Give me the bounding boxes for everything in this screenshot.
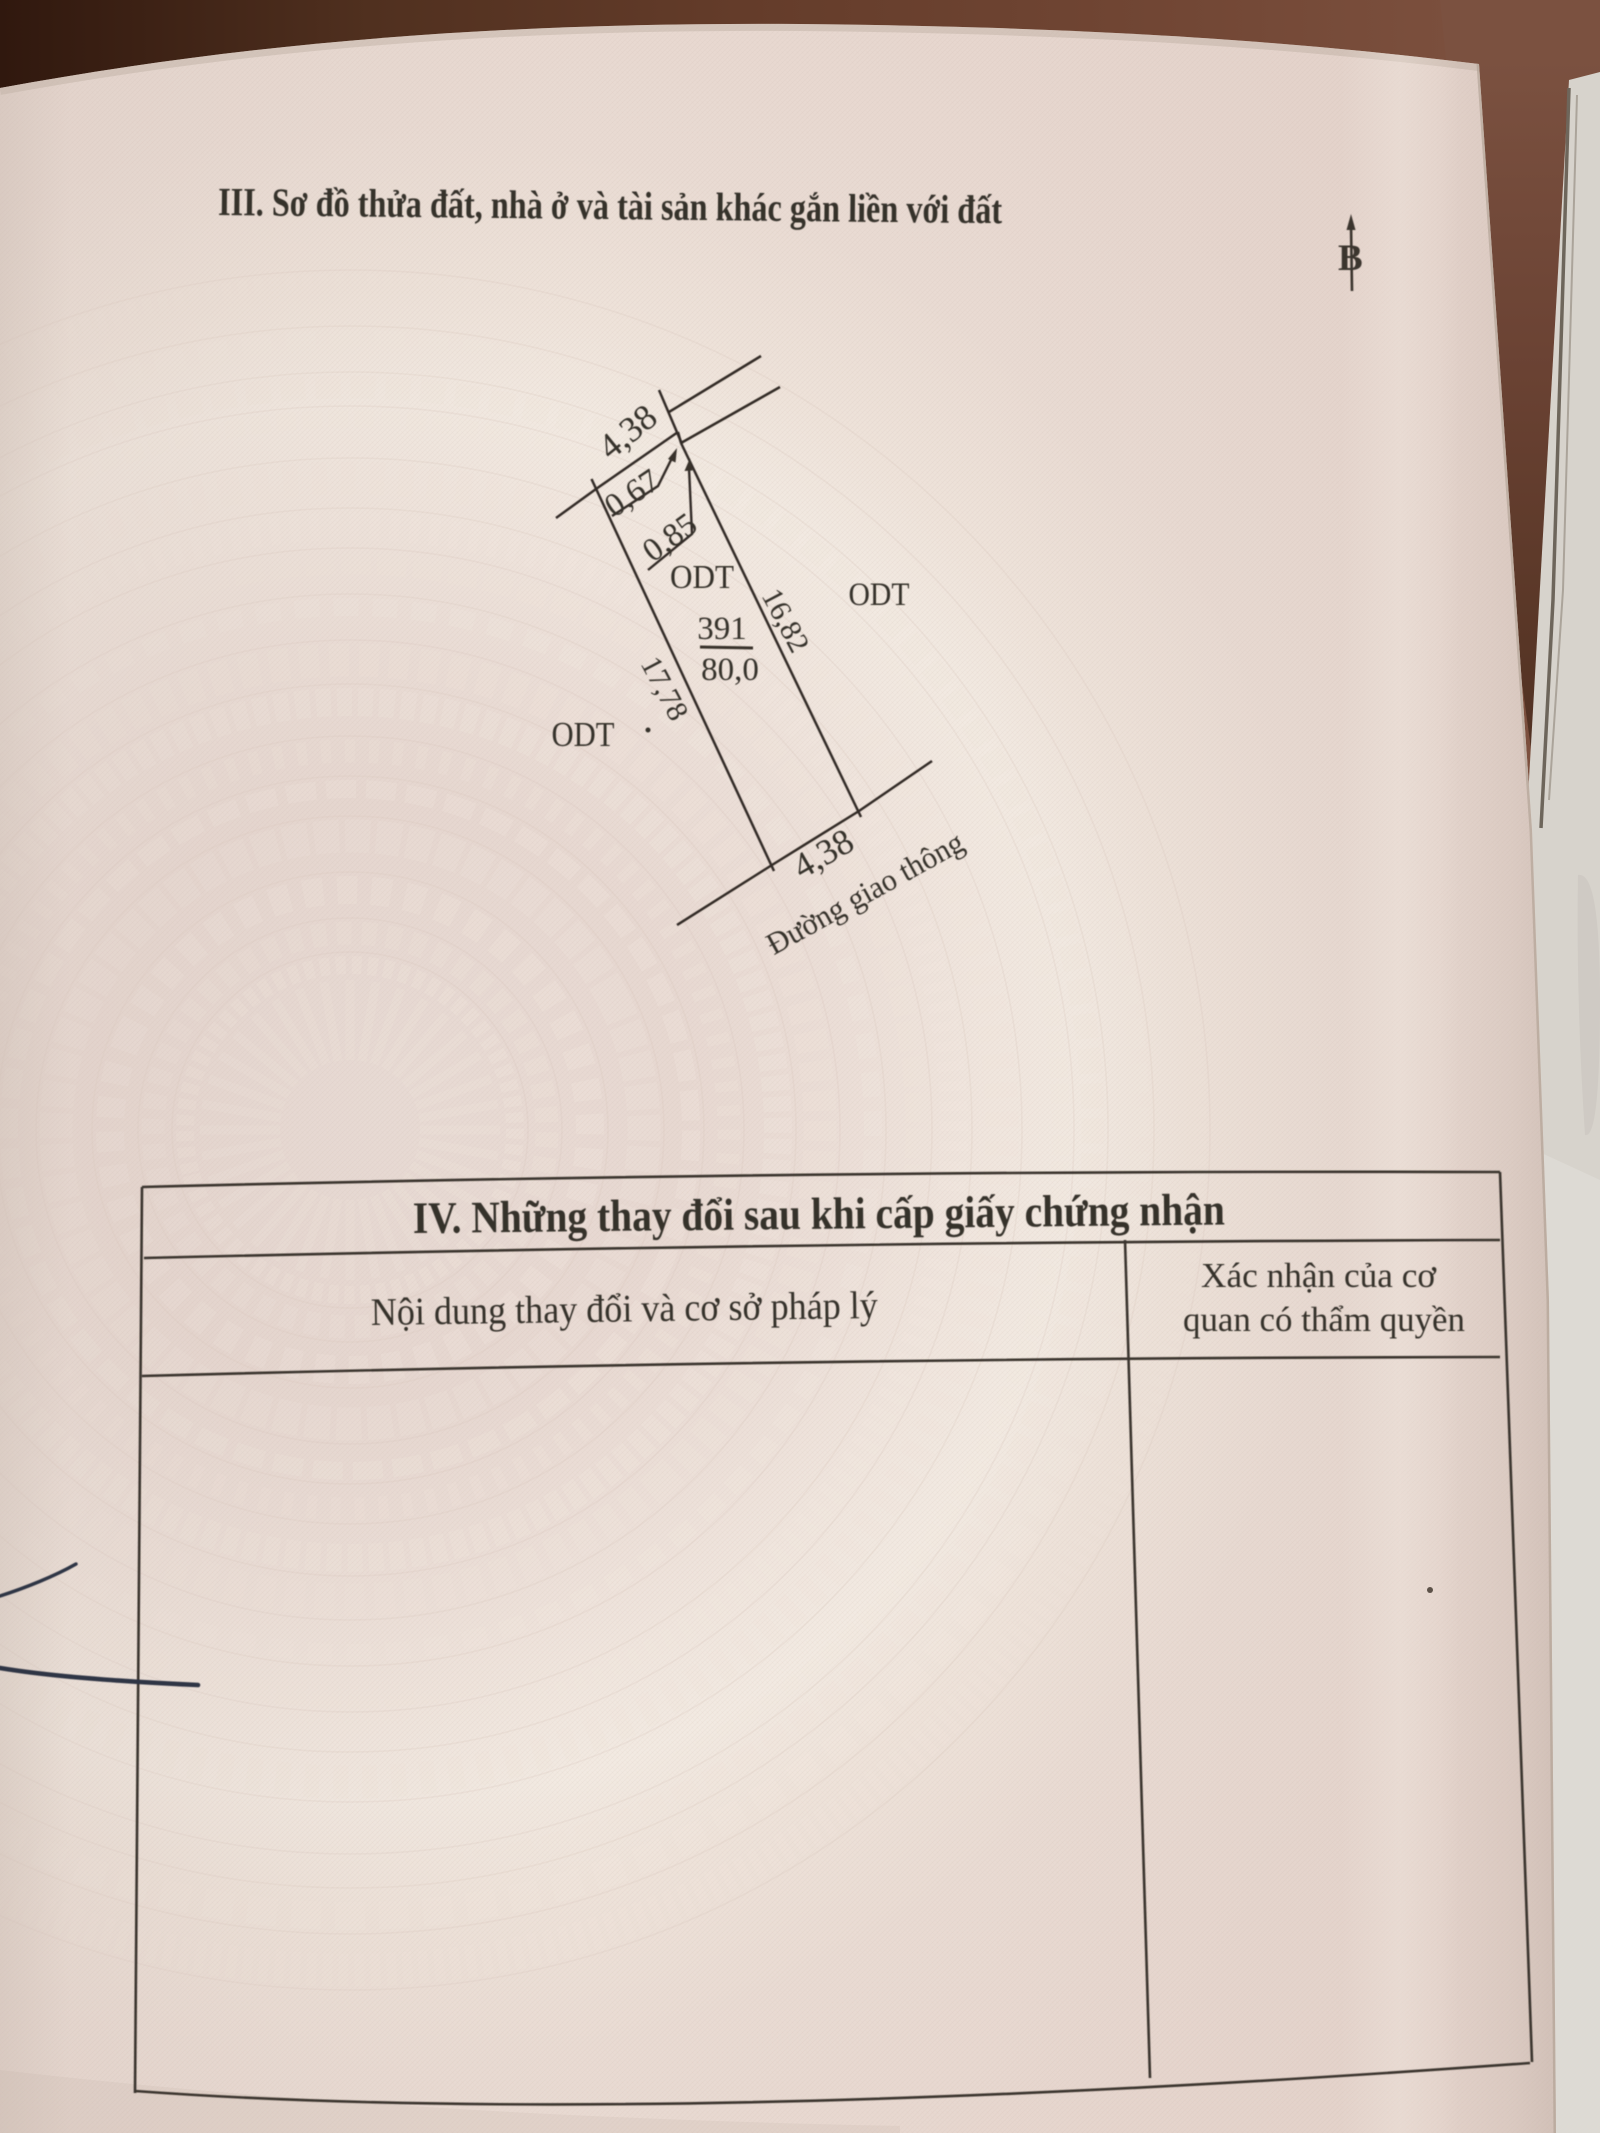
svg-text:B: B: [1338, 238, 1363, 279]
svg-text:Nội dung thay đổi và cơ sở phá: Nội dung thay đổi và cơ sở pháp lý: [371, 1284, 879, 1334]
svg-text:ODT: ODT: [552, 715, 615, 754]
svg-text:391: 391: [697, 611, 747, 647]
svg-text:ODT: ODT: [849, 577, 910, 613]
svg-text:Xác nhận của cơ: Xác nhận của cơ: [1201, 1256, 1436, 1295]
svg-text:IV. Những thay đổi sau khi cấp: IV. Những thay đổi sau khi cấp giấy chứn…: [413, 1184, 1225, 1243]
svg-text:III. Sơ đồ thửa đất, nhà ở và: III. Sơ đồ thửa đất, nhà ở và tài sản kh…: [218, 179, 1003, 232]
svg-text:quan có thẩm quyền: quan có thẩm quyền: [1183, 1300, 1465, 1339]
svg-text:80,0: 80,0: [701, 652, 759, 688]
svg-text:ODT: ODT: [670, 559, 734, 596]
